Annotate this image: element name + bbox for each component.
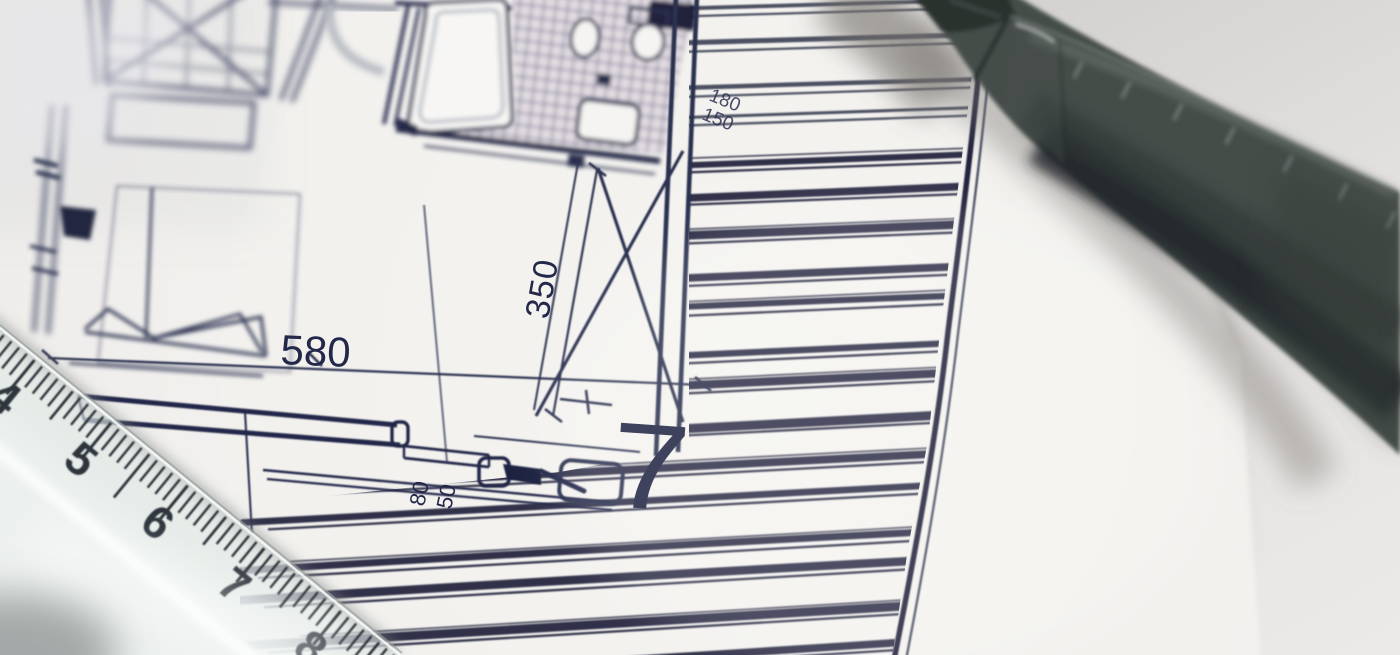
svg-text:80: 80	[404, 479, 434, 508]
svg-text:580: 580	[280, 326, 352, 376]
svg-text:50: 50	[431, 482, 461, 511]
